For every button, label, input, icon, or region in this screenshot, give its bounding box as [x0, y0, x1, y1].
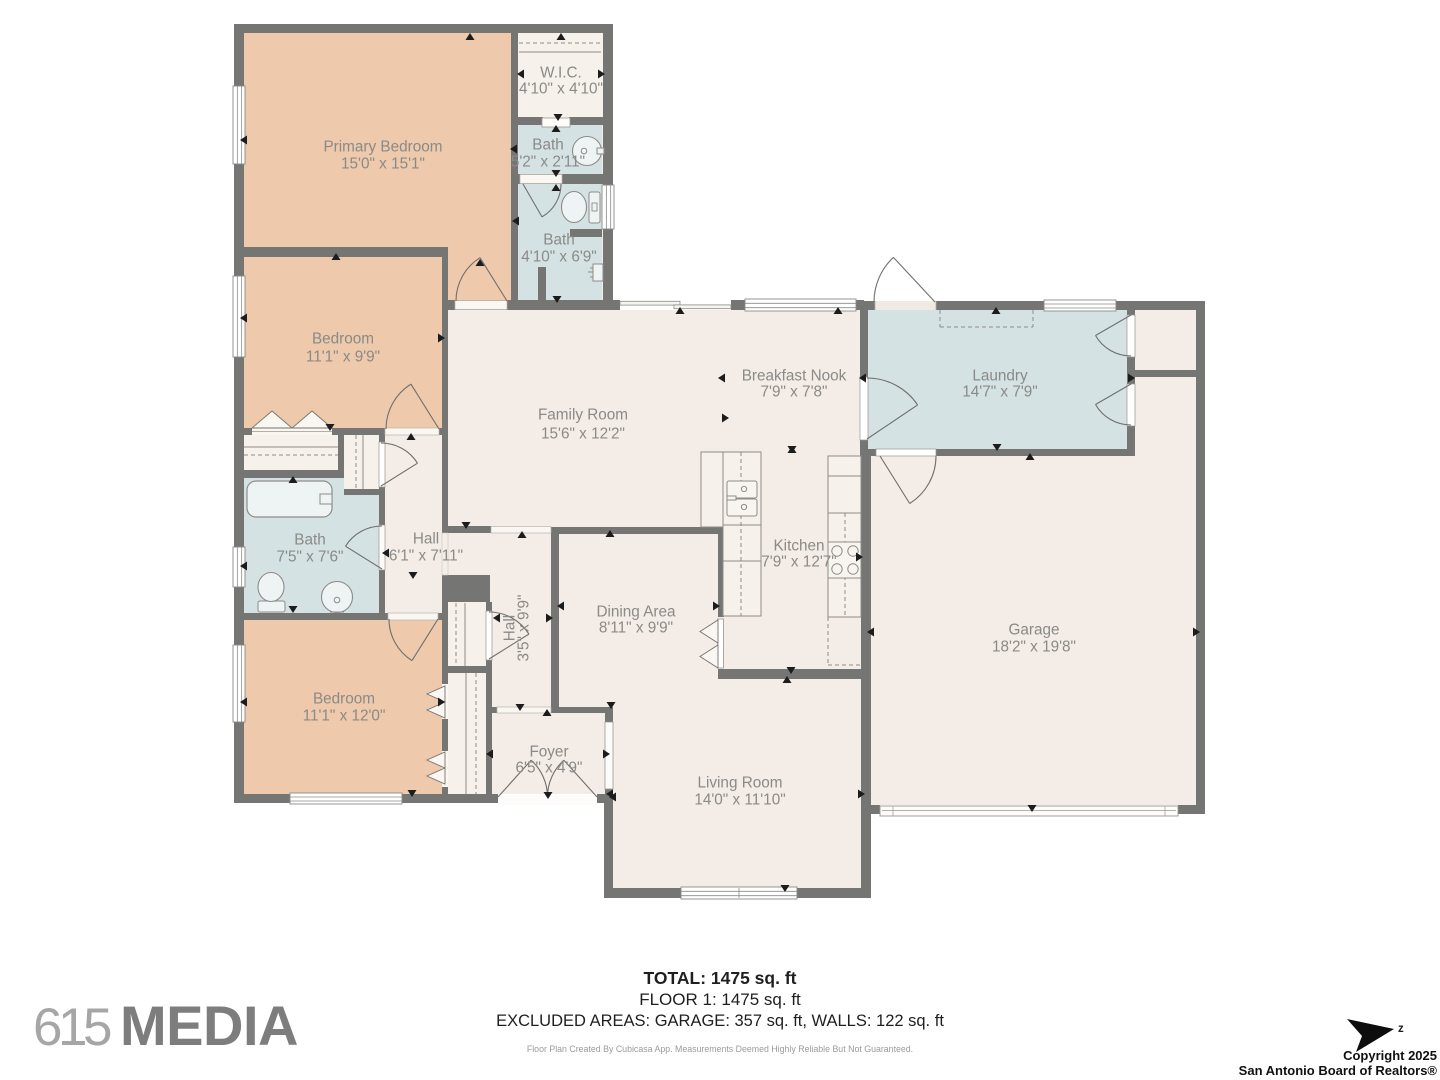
svg-text:Hall: Hall: [413, 530, 439, 547]
svg-text:11'1" x 12'0": 11'1" x 12'0": [303, 707, 386, 724]
svg-text:Copyright 2025: Copyright 2025: [1343, 1048, 1437, 1063]
svg-text:Laundry: Laundry: [972, 367, 1028, 384]
svg-text:FLOOR 1: 1475 sq. ft: FLOOR 1: 1475 sq. ft: [639, 990, 801, 1009]
svg-text:Bath: Bath: [543, 231, 574, 248]
svg-text:15'6" x 12'2": 15'6" x 12'2": [541, 425, 625, 442]
svg-text:6'1" x 7'11": 6'1" x 7'11": [389, 547, 463, 564]
svg-text:615: 615: [33, 998, 111, 1057]
svg-text:Garage: Garage: [1008, 621, 1059, 638]
svg-text:14'7" x 7'9": 14'7" x 7'9": [962, 383, 1037, 400]
svg-text:7'9" x 7'8": 7'9" x 7'8": [761, 383, 828, 400]
svg-text:Dining Area: Dining Area: [596, 603, 676, 620]
svg-text:TOTAL: 1475 sq. ft: TOTAL: 1475 sq. ft: [644, 968, 797, 988]
svg-text:MEDIA: MEDIA: [120, 994, 298, 1057]
svg-text:EXCLUDED AREAS: GARAGE: 357 sq: EXCLUDED AREAS: GARAGE: 357 sq. ft, WALL…: [496, 1012, 944, 1030]
svg-text:4'10" x 6'9": 4'10" x 6'9": [521, 248, 596, 265]
svg-text:W.I.C.: W.I.C.: [540, 64, 582, 81]
svg-text:Living Room: Living Room: [697, 774, 782, 791]
svg-text:7'9" x 12'7": 7'9" x 12'7": [761, 553, 836, 570]
svg-text:7'5" x 7'6": 7'5" x 7'6": [277, 548, 344, 565]
svg-text:Floor Plan Created By Cubicasa: Floor Plan Created By Cubicasa App. Meas…: [527, 1044, 913, 1054]
svg-text:z: z: [1398, 1023, 1404, 1035]
svg-text:Bedroom: Bedroom: [312, 330, 374, 347]
svg-text:15'0" x 15'1": 15'0" x 15'1": [341, 155, 425, 172]
svg-text:Kitchen: Kitchen: [773, 537, 824, 554]
svg-text:6'5" x 4'9": 6'5" x 4'9": [516, 759, 583, 776]
svg-text:8'11" x 9'9": 8'11" x 9'9": [599, 619, 673, 636]
svg-text:Bedroom: Bedroom: [313, 690, 375, 707]
svg-text:Bath: Bath: [294, 531, 325, 548]
svg-text:3'5" x 9'9": 3'5" x 9'9": [515, 595, 532, 662]
svg-text:4'10" x 4'10": 4'10" x 4'10": [519, 80, 603, 97]
svg-text:Breakfast Nook: Breakfast Nook: [742, 367, 847, 384]
svg-text:14'0" x 11'10": 14'0" x 11'10": [694, 791, 785, 808]
svg-text:Primary Bedroom: Primary Bedroom: [323, 138, 442, 155]
svg-text:Family Room: Family Room: [538, 406, 628, 423]
svg-text:San Antonio Board of Realtors®: San Antonio Board of Realtors®: [1239, 1063, 1438, 1078]
svg-text:Bath: Bath: [532, 136, 563, 153]
svg-text:5'2" x 2'11": 5'2" x 2'11": [511, 153, 585, 170]
svg-text:11'1" x 9'9": 11'1" x 9'9": [306, 348, 380, 365]
svg-text:18'2" x 19'8": 18'2" x 19'8": [992, 638, 1076, 655]
svg-text:Foyer: Foyer: [529, 743, 568, 760]
